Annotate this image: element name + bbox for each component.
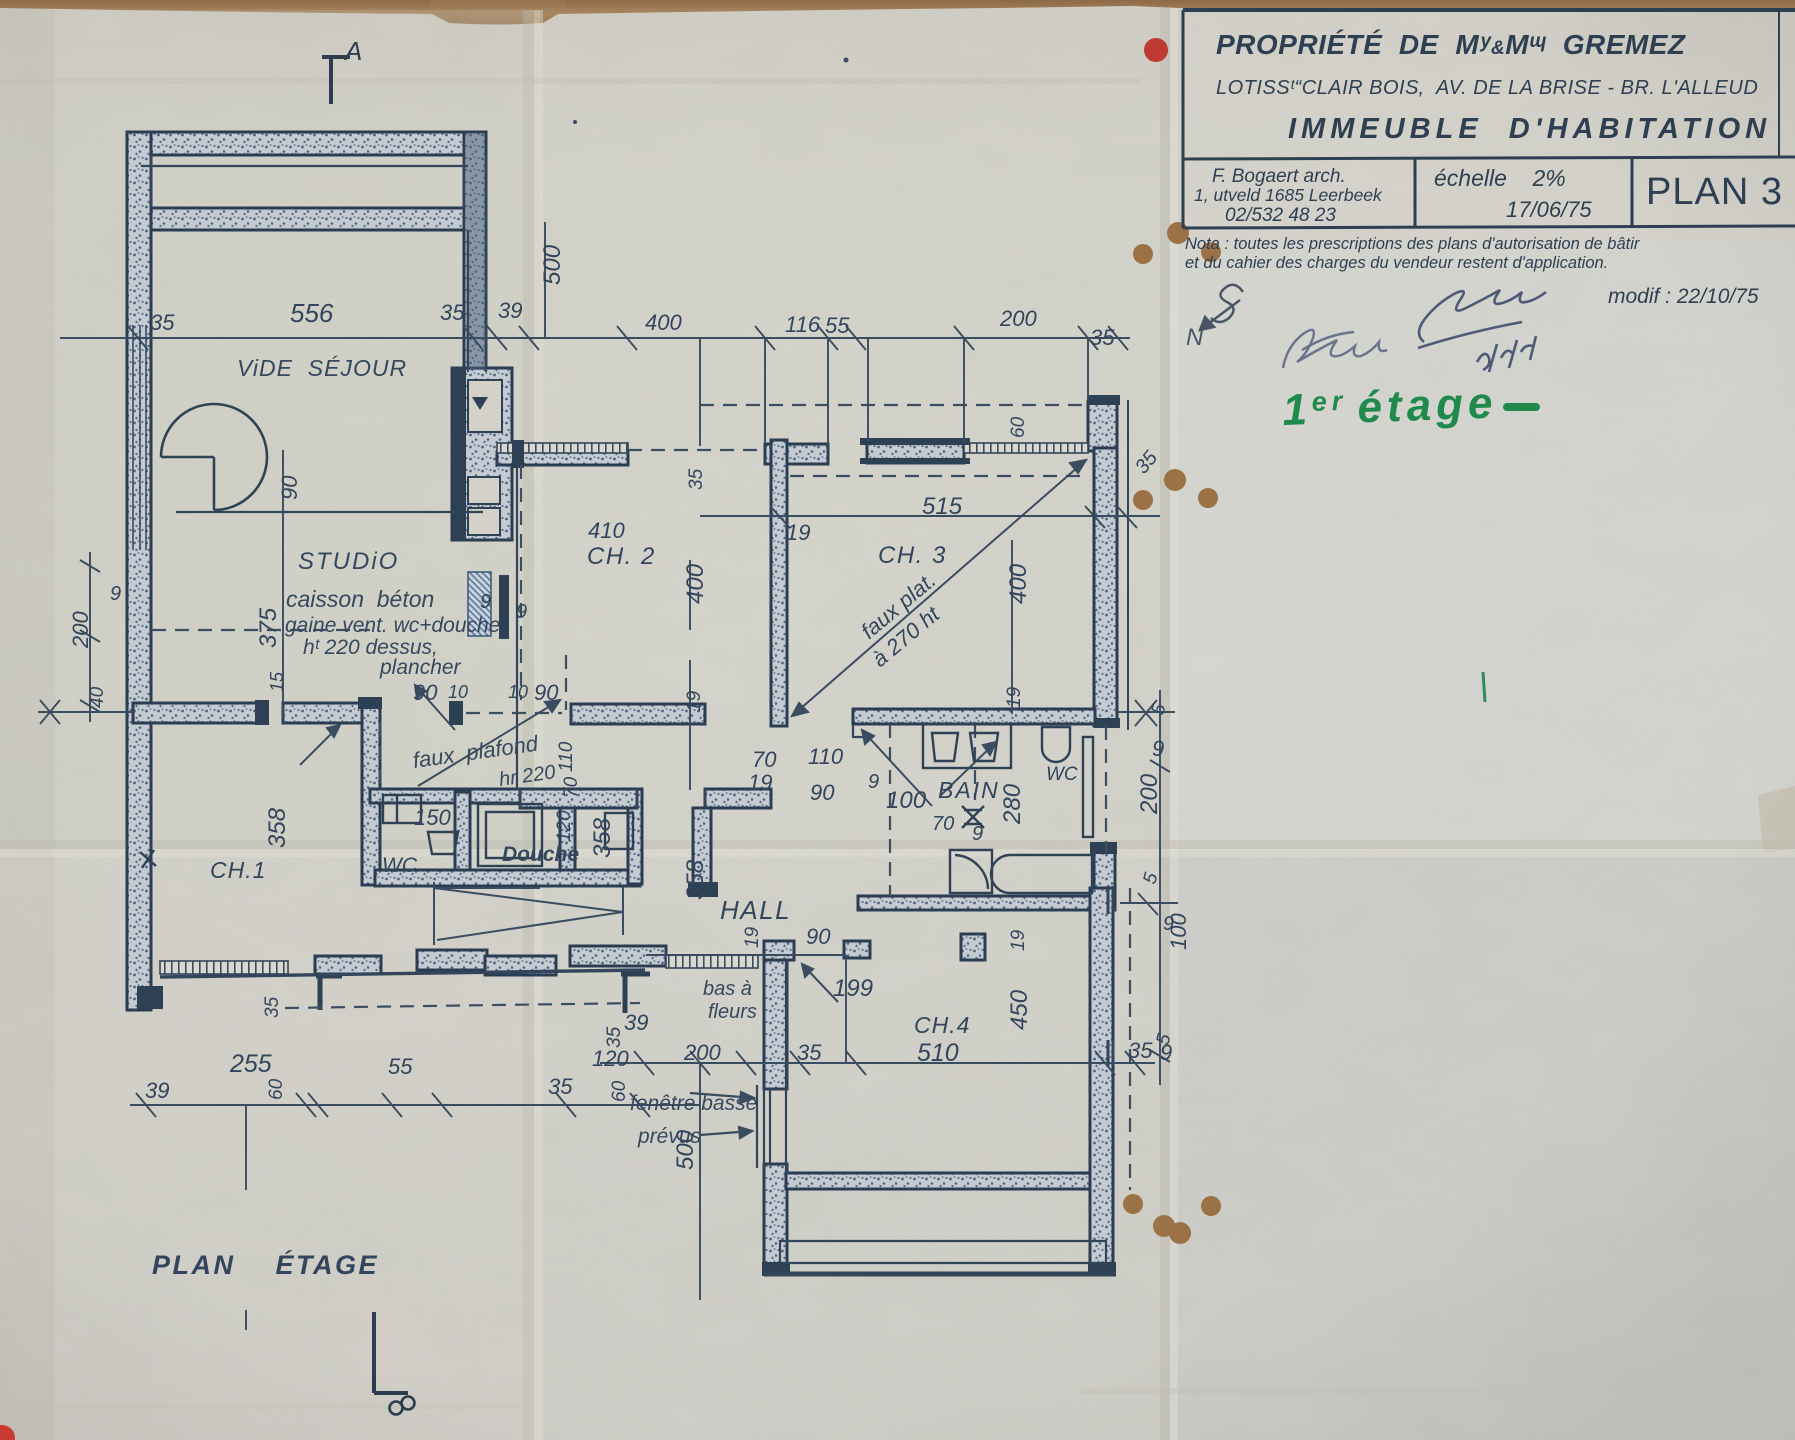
svg-text:CH. 3: CH. 3 xyxy=(878,542,947,569)
svg-text:100: 100 xyxy=(1166,913,1191,950)
svg-text:19: 19 xyxy=(748,770,772,795)
svg-text:9: 9 xyxy=(480,591,491,613)
svg-text:40: 40 xyxy=(87,686,108,708)
svg-text:400: 400 xyxy=(682,563,709,604)
svg-text:WC: WC xyxy=(382,854,418,877)
svg-text:N: N xyxy=(1186,324,1204,351)
svg-text:A: A xyxy=(343,36,362,66)
svg-text:199: 199 xyxy=(833,975,873,1002)
svg-text:IMMEUBLE DʹHABITATION: IMMEUBLE DʹHABITATION xyxy=(1288,113,1771,145)
svg-text:500: 500 xyxy=(539,244,566,285)
svg-text:39: 39 xyxy=(498,298,522,323)
svg-text:fleurs: fleurs xyxy=(708,1001,757,1023)
svg-text:gaine vent. wc+douche: gaine vent. wc+douche xyxy=(285,614,500,637)
svg-text:90: 90 xyxy=(534,680,559,705)
svg-text:WC: WC xyxy=(1046,764,1078,785)
svg-text:70: 70 xyxy=(561,776,582,798)
svg-text:9: 9 xyxy=(972,823,983,845)
svg-text:10: 10 xyxy=(508,682,528,702)
svg-text:280: 280 xyxy=(999,783,1026,825)
svg-text:375: 375 xyxy=(255,607,282,648)
svg-text:70: 70 xyxy=(752,747,777,772)
svg-text:450: 450 xyxy=(1006,989,1033,1030)
svg-text:02/532 48 23: 02/532 48 23 xyxy=(1225,205,1336,226)
svg-text:prévus: prévus xyxy=(637,1125,702,1148)
svg-text:358: 358 xyxy=(264,807,291,848)
svg-text:60: 60 xyxy=(609,1080,630,1102)
svg-text:bas à: bas à xyxy=(703,978,752,1000)
svg-text:Nota : toutes les prescripti: Nota : toutes les prescriptions des plan… xyxy=(1185,235,1641,253)
svg-text:358: 358 xyxy=(589,817,616,858)
svg-text:255: 255 xyxy=(229,1050,272,1078)
svg-text:110: 110 xyxy=(808,744,844,769)
svg-text:200: 200 xyxy=(999,306,1037,331)
svg-text:556: 556 xyxy=(290,298,334,328)
svg-text:39: 39 xyxy=(145,1078,169,1103)
svg-text:PLAN 3: PLAN 3 xyxy=(1646,171,1783,213)
svg-text:35: 35 xyxy=(548,1074,573,1099)
svg-text:F. Bogaert arch.: F. Bogaert arch. xyxy=(1212,166,1346,187)
svg-text:35: 35 xyxy=(262,996,283,1018)
svg-text:35: 35 xyxy=(1128,1038,1153,1063)
svg-text:35: 35 xyxy=(440,300,465,325)
svg-text:fenêtre basse: fenêtre basse xyxy=(630,1092,757,1115)
svg-text:PROPRIÉTÉ DE Mʸ&Mᶭ GREMEZ: PROPRIÉTÉ DE Mʸ&Mᶭ GREMEZ xyxy=(1216,29,1686,60)
svg-text:515: 515 xyxy=(922,493,963,520)
svg-text:400: 400 xyxy=(645,310,682,335)
svg-text:90: 90 xyxy=(277,475,302,500)
svg-text:150: 150 xyxy=(414,805,451,830)
svg-text:caisson béton: caisson béton xyxy=(286,586,434,612)
svg-text:60: 60 xyxy=(266,1078,287,1100)
svg-text:35: 35 xyxy=(150,310,175,335)
svg-text:9: 9 xyxy=(1160,1040,1172,1065)
svg-text:200: 200 xyxy=(683,1040,721,1065)
svg-text:9: 9 xyxy=(110,583,121,605)
svg-text:510: 510 xyxy=(917,1039,959,1067)
svg-text:19: 19 xyxy=(742,926,763,948)
svg-text:100: 100 xyxy=(886,787,927,814)
svg-text:19: 19 xyxy=(1004,686,1025,708)
svg-text:modif : 22/10/75: modif : 22/10/75 xyxy=(1608,285,1759,308)
svg-text:55: 55 xyxy=(388,1054,413,1079)
svg-text:1, utveld 1685 Leerbeek: 1, utveld 1685 Leerbeek xyxy=(1194,185,1383,205)
svg-text:HALL: HALL xyxy=(720,895,791,925)
svg-text:90: 90 xyxy=(413,680,438,705)
svg-text:35: 35 xyxy=(686,468,707,490)
svg-text:17/06/75: 17/06/75 xyxy=(1506,197,1592,222)
svg-text:19: 19 xyxy=(786,520,810,545)
svg-text:110: 110 xyxy=(556,741,577,772)
svg-text:35: 35 xyxy=(797,1040,822,1065)
svg-text:CH. 2: CH. 2 xyxy=(587,543,656,570)
svg-text:200: 200 xyxy=(1136,773,1163,815)
svg-text:120: 120 xyxy=(554,810,575,842)
svg-text:9: 9 xyxy=(516,601,527,623)
svg-text:plancher: plancher xyxy=(379,656,462,679)
svg-text:90: 90 xyxy=(810,780,835,805)
svg-text:60: 60 xyxy=(1008,416,1029,438)
svg-text:70: 70 xyxy=(932,813,954,835)
svg-text:200: 200 xyxy=(68,611,93,649)
svg-text:échelle 2%: échelle 2% xyxy=(1434,165,1566,191)
svg-text:410: 410 xyxy=(588,518,625,543)
svg-text:BAIN: BAIN xyxy=(938,777,1000,803)
svg-text:19: 19 xyxy=(1008,929,1029,951)
svg-text:CH.4: CH.4 xyxy=(914,1012,970,1038)
svg-text:10: 10 xyxy=(448,682,468,702)
svg-text:LOTISSᵗ“CLAIR BOIS‚ AV. DE LA: LOTISSᵗ“CLAIR BOIS‚ AV. DE LA BRISE - BR… xyxy=(1216,77,1758,99)
svg-text:39: 39 xyxy=(624,1010,648,1035)
svg-text:116: 116 xyxy=(785,312,821,337)
svg-text:400: 400 xyxy=(1005,563,1032,604)
svg-text:STUDiO: STUDiO xyxy=(298,548,399,575)
svg-text:CH.1: CH.1 xyxy=(210,857,266,883)
svg-text:35: 35 xyxy=(1090,325,1115,350)
svg-text:et du cahier des charges: et du cahier des charges du vendeur rest… xyxy=(1185,254,1608,272)
svg-text:PLAN ÉTAGE: PLAN ÉTAGE xyxy=(152,1249,379,1280)
svg-text:Douche: Douche xyxy=(502,843,579,866)
svg-text:19: 19 xyxy=(684,690,705,712)
svg-text:15: 15 xyxy=(267,671,287,692)
svg-text:35: 35 xyxy=(604,1026,625,1048)
svg-text:9: 9 xyxy=(868,771,879,793)
svg-text:120: 120 xyxy=(592,1046,629,1071)
svg-text:ViDE SÉJOUR: ViDE SÉJOUR xyxy=(237,355,407,381)
svg-text:55: 55 xyxy=(825,313,850,338)
svg-text:90: 90 xyxy=(806,924,831,949)
svg-text:358: 358 xyxy=(682,859,709,900)
svg-text:9: 9 xyxy=(1152,736,1164,761)
